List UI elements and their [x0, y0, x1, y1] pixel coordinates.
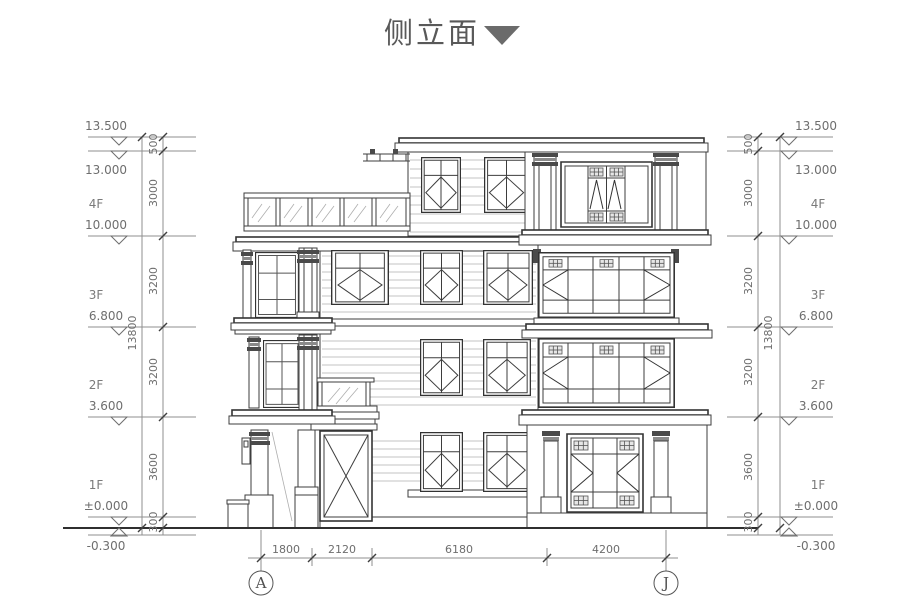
dim-500-left: 500 [147, 134, 160, 155]
window-4f-b [484, 157, 528, 212]
left-dimension-system: 13.500 13.000 4F 10.000 3F 6.800 2F 3.60… [84, 119, 196, 553]
left-bay-window-2f [263, 340, 300, 407]
floor-3f-left: 3F [89, 288, 104, 302]
dim-300-left: 300 [147, 512, 160, 533]
window-1f-b [420, 432, 462, 491]
floor-1f-left: 1F [89, 478, 104, 492]
page-title: 侧立面 [384, 16, 520, 50]
entrance-door [272, 431, 372, 521]
bay-window-3f [539, 253, 674, 317]
dim-4200: 4200 [592, 543, 620, 556]
dim-total-right: 13800 [762, 316, 775, 351]
level-10000-right: 10.000 [795, 218, 837, 232]
elevation-drawing-page: 侧立面 [0, 0, 910, 612]
dim-3600-right: 3600 [742, 453, 755, 481]
level-0000-left: ±0.000 [84, 499, 128, 513]
bay-sill-3f [534, 318, 679, 324]
bay-window-2f [539, 339, 674, 407]
floor-4f-left: 4F [89, 197, 104, 211]
floor-4f-right: 4F [811, 197, 826, 211]
grid-label-j: J [661, 574, 669, 592]
dim-1800: 1800 [272, 543, 300, 556]
level-13000-right: 13.000 [795, 163, 837, 177]
dim-3000-right: 3000 [742, 179, 755, 207]
floor-1f-right: 1F [811, 478, 826, 492]
floor-3f-right: 3F [811, 288, 826, 302]
window-4f-tower [561, 162, 652, 227]
dim-total-left: 13800 [126, 316, 139, 351]
window-3f-a [332, 250, 389, 304]
terrace-glass-railing [244, 193, 410, 231]
window-2f-b [420, 339, 462, 395]
collapse-triangle-icon[interactable] [484, 26, 520, 45]
dim-3000-left: 3000 [147, 179, 160, 207]
window-4f-a [421, 157, 460, 212]
grid-bubble-j: J [654, 571, 678, 595]
pilaster-4f-left [532, 153, 558, 230]
dim-3600-left: 3600 [147, 453, 160, 481]
entry-steps [227, 500, 249, 528]
title-text: 侧立面 [384, 16, 480, 50]
right-dimension-system: 13.500 13.000 4F 10.000 3F 6.800 2F 3.60… [727, 119, 838, 553]
level-13500-left: 13.500 [85, 119, 127, 133]
level-3600-left: 3.600 [89, 399, 123, 413]
left-bay-window-3f [255, 252, 298, 317]
building-elevation [63, 138, 758, 528]
roof-slab [395, 138, 708, 152]
dim-3200b-right: 3200 [742, 358, 755, 386]
window-3f-b [420, 250, 462, 304]
bottom-dimension-system: 1800 2120 6180 4200 A J [248, 530, 678, 595]
dim-500-right: 500 [742, 134, 755, 155]
level-10000-left: 10.000 [85, 218, 127, 232]
floor-band-2f3f [319, 319, 539, 326]
cornice-3f-top [233, 237, 538, 251]
tower-plinth [527, 513, 707, 528]
window-1f-tower [567, 434, 643, 512]
level-m0300-left: -0.300 [87, 539, 126, 553]
dim-300-right: 300 [742, 512, 755, 533]
window-2f-c [483, 339, 530, 395]
pilaster-1f-left [541, 431, 561, 513]
pilaster-4f-right [653, 153, 679, 230]
right-tower [519, 152, 712, 528]
level-3600-right: 3.600 [799, 399, 833, 413]
floor-2f-right: 2F [811, 378, 826, 392]
window-1f-c [483, 432, 530, 491]
grid-bubble-a: A [249, 571, 273, 595]
dim-3200a-left: 3200 [147, 267, 160, 295]
level-6800-right: 6.800 [799, 309, 833, 323]
grid-label-a: A [255, 574, 267, 592]
level-6800-left: 6.800 [89, 309, 123, 323]
level-13500-right: 13.500 [795, 119, 837, 133]
side-elevation-drawing: 侧立面 [0, 0, 910, 612]
level-0000-right: ±0.000 [794, 499, 838, 513]
floor-2f-left: 2F [89, 378, 104, 392]
window-3f-c [484, 250, 533, 304]
dim-3200a-right: 3200 [742, 267, 755, 295]
dim-3200b-left: 3200 [147, 358, 160, 386]
level-13000-left: 13.000 [85, 163, 127, 177]
pilaster-1f-right [651, 431, 671, 513]
dim-6180: 6180 [445, 543, 473, 556]
dim-2120: 2120 [328, 543, 356, 556]
level-m0300-right: -0.300 [797, 539, 836, 553]
